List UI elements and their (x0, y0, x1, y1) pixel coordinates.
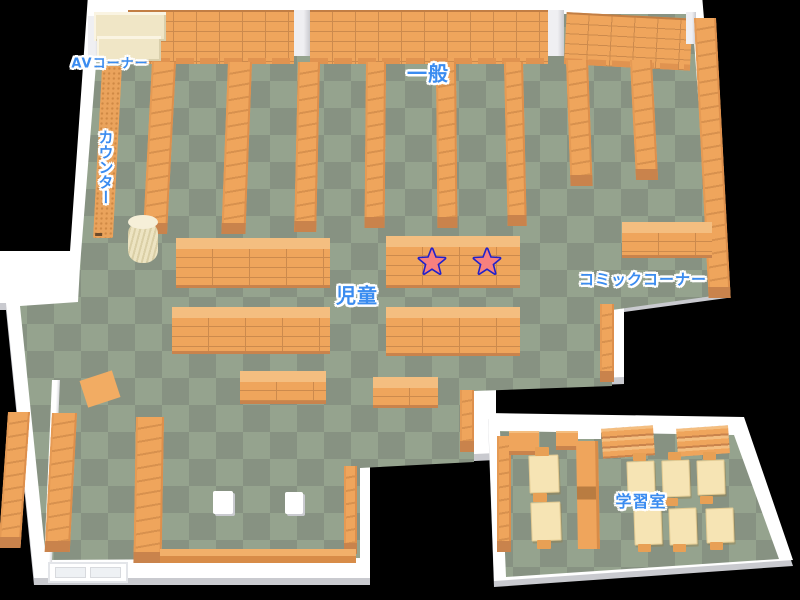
bookshelf (143, 62, 176, 234)
chair (703, 452, 716, 460)
white-table (285, 492, 303, 514)
study-desk (705, 508, 734, 544)
bookshelf (133, 417, 164, 563)
star-icon[interactable] (416, 246, 448, 278)
low-shelf (386, 307, 520, 356)
divider-shelf (576, 441, 600, 549)
low-shelf (176, 238, 330, 288)
wall-pillar (548, 10, 564, 56)
library-floor-map: AVコーナー カウンター 一般 児童 コミックコーナー 学習室 (0, 0, 800, 600)
chair (633, 453, 646, 461)
bookshelf (630, 60, 658, 180)
chair (535, 447, 549, 456)
chair (665, 498, 678, 506)
chair (537, 540, 551, 549)
wall-pillar (294, 10, 310, 56)
study-desk (528, 454, 559, 493)
area-label-study-room: 学習室 (615, 488, 666, 512)
bookshelf (365, 62, 386, 228)
study-desk (530, 501, 561, 541)
star-icon[interactable] (471, 246, 503, 278)
area-label-general: 一般 (407, 58, 449, 87)
bookshelf (566, 60, 593, 186)
chair (668, 452, 681, 460)
bookshelf (294, 62, 320, 232)
low-shelf (172, 307, 330, 354)
entrance-door[interactable] (48, 562, 128, 583)
area-label-children: 児童 (336, 280, 378, 309)
bookshelf (460, 390, 474, 452)
study-desk (633, 508, 662, 546)
bookshelf (556, 431, 578, 450)
bookshelf (600, 304, 614, 382)
chair (638, 544, 651, 552)
reading-table (80, 370, 121, 407)
area-label-comic-corner: コミックコーナー (579, 269, 707, 290)
chair (710, 542, 723, 550)
chair (700, 496, 713, 504)
study-desk (696, 460, 725, 496)
low-shelf (373, 377, 438, 408)
bookshelf (221, 62, 252, 234)
low-shelf (622, 222, 712, 258)
chair (673, 544, 686, 552)
area-label-counter: カウンター (96, 130, 117, 205)
chair (533, 493, 547, 502)
low-shelf (240, 371, 326, 404)
bookshelf (436, 62, 457, 228)
bookshelf (344, 466, 357, 554)
white-table (213, 491, 233, 514)
bookshelf (0, 412, 30, 548)
display-cylinder (128, 221, 158, 263)
wall-shelf-run (310, 10, 548, 64)
area-label-av-corner: AVコーナー (71, 53, 148, 72)
wall-shelf (160, 549, 356, 563)
bookshelf (504, 62, 527, 226)
study-desk (668, 508, 697, 546)
shelf-row (601, 425, 655, 459)
